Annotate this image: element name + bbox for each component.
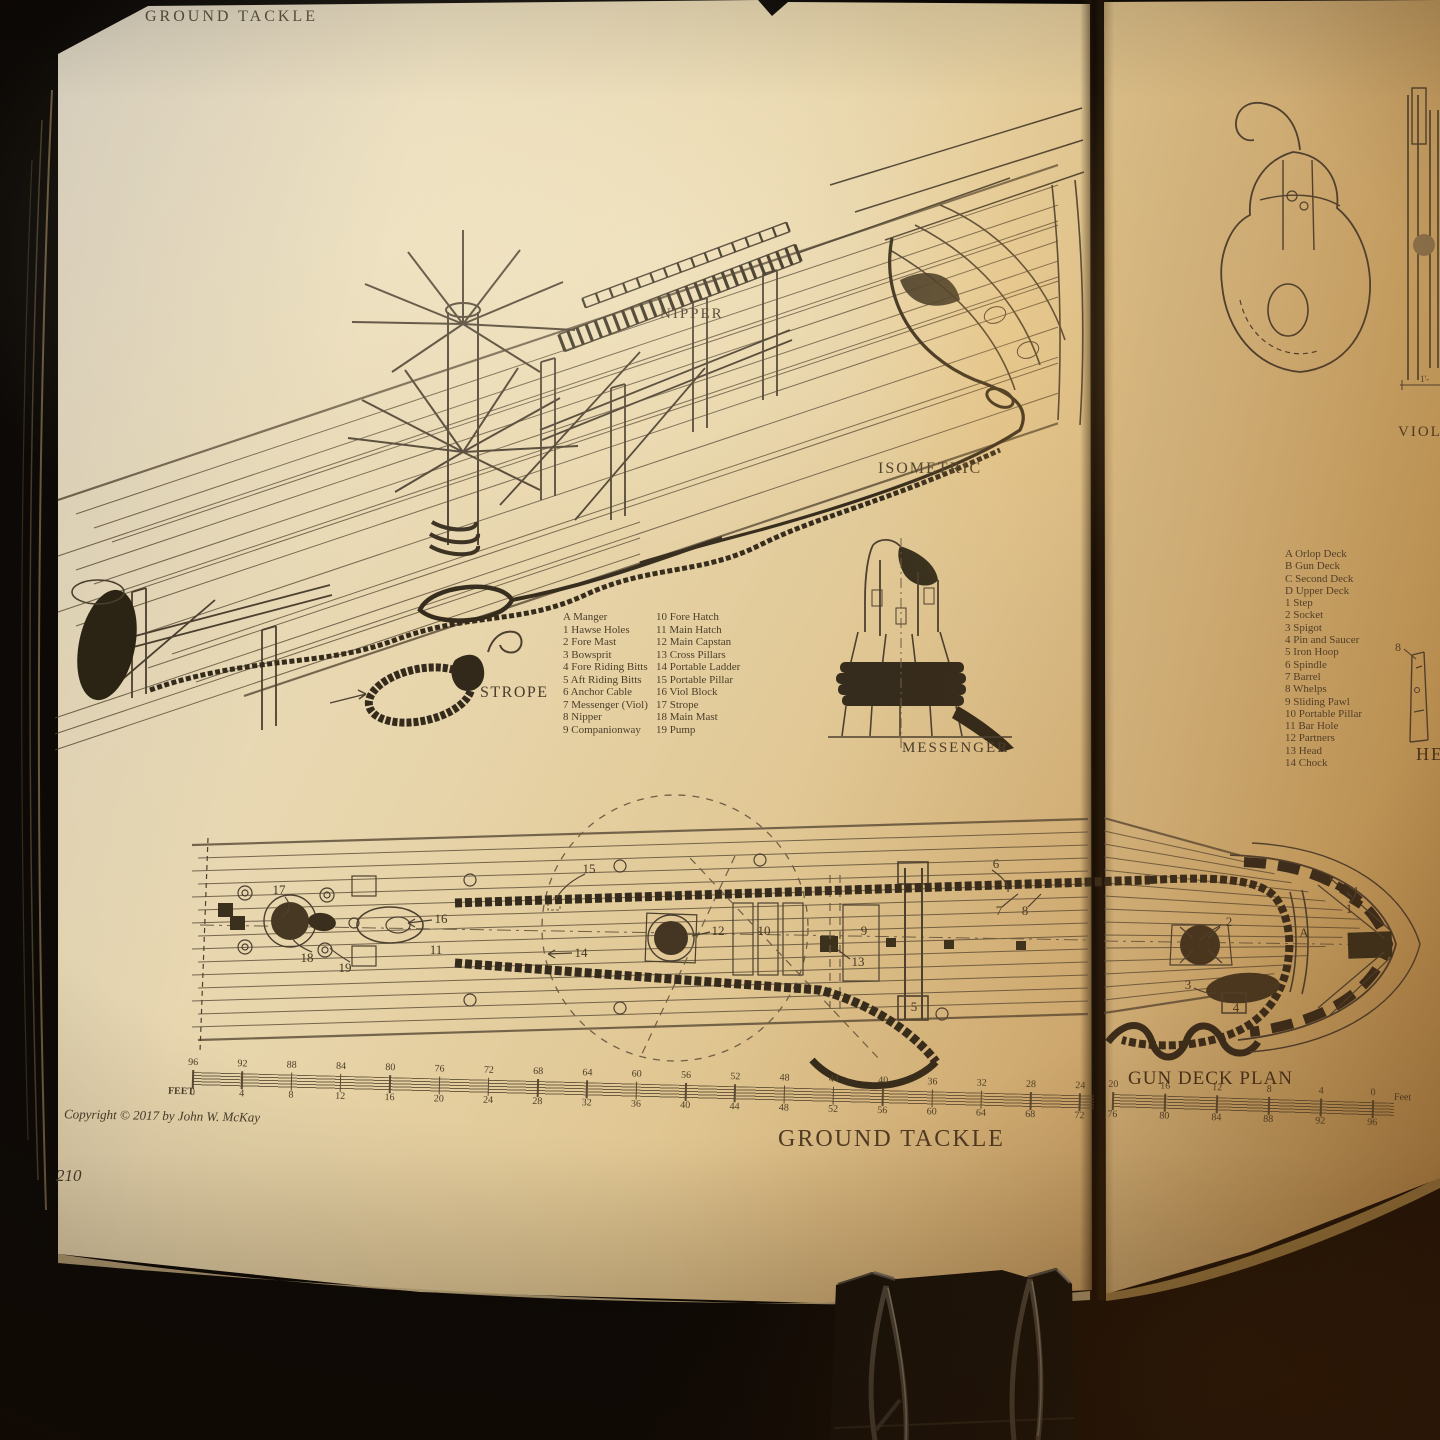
plan-annotation-16: 16 <box>435 911 448 927</box>
scale-tick: 2868 <box>1030 1092 1032 1110</box>
plan-annotation-14: 14 <box>575 945 588 961</box>
legend-entry: A Manger <box>563 611 648 624</box>
legend-entry: 19 Pump <box>656 724 740 737</box>
scale-tick: 2076 <box>1112 1092 1114 1110</box>
plan-annotation-1: 1 <box>1346 901 1353 917</box>
legend-entry: 5 Aft Riding Bitts <box>563 674 648 687</box>
scale-tick: 4848 <box>783 1085 785 1103</box>
photo-stage: GROUND TACKLE NIPPER ISOMETRIC STROPE ME… <box>0 0 1440 1440</box>
legend-entry: 14 Portable Ladder <box>656 661 740 674</box>
scale-tick: 1680 <box>1164 1094 1166 1112</box>
legend-entry: 9 Companionway <box>563 724 648 737</box>
legend-entry: 9 Sliding Pawl <box>1285 696 1362 708</box>
scale-tick: 6036 <box>635 1082 637 1100</box>
plan-annotation-10: 10 <box>758 923 771 939</box>
legend-entry: 16 Viol Block <box>656 686 740 699</box>
plan-annotation-18: 18 <box>301 950 314 966</box>
plan-annotation-6: 6 <box>993 856 1000 872</box>
plan-annotation-7: 7 <box>996 903 1003 919</box>
legend-entry: 12 Main Capstan <box>656 636 740 649</box>
page-stack-edges <box>22 90 52 1210</box>
legend-entry: 1 Hawse Holes <box>563 624 648 637</box>
scale-tick: 492 <box>1320 1099 1322 1117</box>
plan-annotation-3: 3 <box>1185 977 1192 993</box>
legend-entry: 2 Socket <box>1285 609 1362 621</box>
scale-tick: 4056 <box>882 1088 884 1106</box>
scale-tick: 096 <box>1372 1100 1374 1118</box>
legend-entry: 13 Cross Pillars <box>656 649 740 662</box>
scale-tick: 4452 <box>832 1087 834 1105</box>
legend-entry: 7 Messenger (Viol) <box>563 699 648 712</box>
legend-entry: 15 Portable Pillar <box>656 674 740 687</box>
plan-annotation-13: 13 <box>852 954 865 970</box>
capstan-legend: A Orlop DeckB Gun DeckC Second DeckD Upp… <box>1285 548 1362 769</box>
legend-entry: 3 Spigot <box>1285 622 1362 634</box>
legend-entry: 11 Bar Hole <box>1285 720 1362 732</box>
plan-annotation-2: 2 <box>1226 914 1233 930</box>
plan-annotation-17: 17 <box>273 882 286 898</box>
legend-entry: 4 Fore Riding Bitts <box>563 661 648 674</box>
legend-entry: 3 Bowsprit <box>563 649 648 662</box>
scale-tick: 5640 <box>685 1083 687 1101</box>
scale-tick: 5244 <box>734 1084 736 1102</box>
plan-annotation-19: 19 <box>339 960 352 976</box>
scale-tick: 888 <box>290 1073 292 1091</box>
book-photo: { "colors":{"paper_light":"#e9dcbd","pap… <box>0 0 1440 1440</box>
scale-tick: 888 <box>1268 1097 1270 1115</box>
legend-entry: 4 Pin and Saucer <box>1285 634 1362 646</box>
legend-entry: D Upper Deck <box>1285 585 1362 597</box>
scale-tick: 7224 <box>487 1078 489 1096</box>
plan-annotation-5: 5 <box>911 999 918 1015</box>
legend-entry: 1 Step <box>1285 597 1362 609</box>
scale-tick: 3264 <box>980 1091 982 1109</box>
plan-annotation-4: 4 <box>1233 1000 1240 1016</box>
plan-annotation-15: 15 <box>583 861 596 877</box>
scale-tick: 7620 <box>438 1076 440 1094</box>
iso-legend-col2: 10 Fore Hatch11 Main Hatch12 Main Capsta… <box>656 611 740 736</box>
legend-entry: C Second Deck <box>1285 573 1362 585</box>
plan-annotation-11: 11 <box>430 942 443 958</box>
plan-annotation-A: A <box>1299 925 1308 941</box>
scale-tick: 8412 <box>340 1074 342 1092</box>
legend-entry: 10 Fore Hatch <box>656 611 740 624</box>
legend-entry: 18 Main Mast <box>656 711 740 724</box>
legend-entry: 8 Nipper <box>563 711 648 724</box>
plan-annotation-8: 8 <box>1022 903 1029 919</box>
legend-entry: 8 Whelps <box>1285 683 1362 695</box>
legend-entry: 12 Partners <box>1285 732 1362 744</box>
legend-entry: 2 Fore Mast <box>563 636 648 649</box>
legend-entry: 10 Portable Pillar <box>1285 708 1362 720</box>
plan-annotation-9: 9 <box>861 923 868 939</box>
legend-entry: B Gun Deck <box>1285 560 1362 572</box>
scale-tick: 1284 <box>1216 1095 1218 1113</box>
legend-entry: A Orlop Deck <box>1285 548 1362 560</box>
scale-tick: 2472 <box>1079 1093 1081 1111</box>
iso-legend-col1: A Manger1 Hawse Holes2 Fore Mast3 Bowspr… <box>563 611 648 736</box>
legend-entry: 7 Barrel <box>1285 671 1362 683</box>
scale-tick: 6432 <box>586 1080 588 1098</box>
scale-tick: 3660 <box>931 1089 933 1107</box>
scale-tick: 924 <box>241 1071 243 1089</box>
legend-entry: 17 Strope <box>656 699 740 712</box>
scale-tick: 6828 <box>537 1079 539 1097</box>
legend-entry: 6 Anchor Cable <box>563 686 648 699</box>
scale-tick: 8016 <box>389 1075 391 1093</box>
legend-entry: 11 Main Hatch <box>656 624 740 637</box>
legend-entry: 6 Spindle <box>1285 659 1362 671</box>
scale-tick: 960 <box>192 1070 194 1088</box>
plan-annotation-12: 12 <box>712 923 725 939</box>
legend-entry: 13 Head <box>1285 745 1362 757</box>
legend-entry: 14 Chock <box>1285 757 1362 769</box>
legend-entry: 5 Iron Hoop <box>1285 646 1362 658</box>
